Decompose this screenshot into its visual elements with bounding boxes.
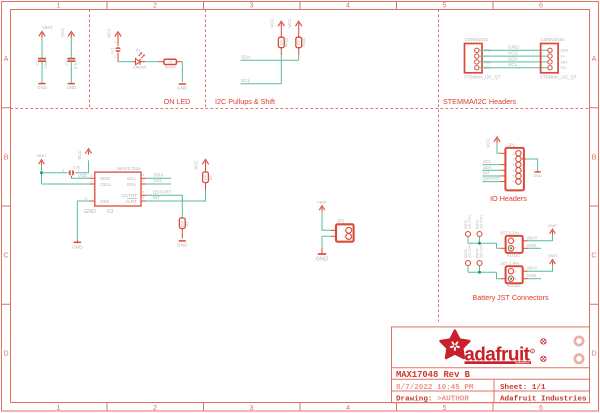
svg-text:SCL: SCL: [508, 62, 518, 68]
svg-text:VBAT: VBAT: [527, 235, 538, 240]
svg-text:INT: INT: [483, 170, 490, 175]
svg-text:JST 2 PH: JST 2 PH: [500, 230, 519, 235]
svg-text:R0402: R0402: [165, 66, 176, 70]
svg-text:GND: GND: [177, 86, 188, 91]
svg-text:4: 4: [143, 173, 145, 177]
svg-text:GND: GND: [316, 257, 329, 263]
svg-text:VDD: VDD: [78, 173, 87, 178]
svg-text:5: 5: [513, 174, 515, 178]
svg-text:VDD: VDD: [100, 176, 111, 181]
svg-text:5: 5: [143, 196, 145, 200]
svg-text:1: 1: [515, 247, 517, 251]
svg-text:STEMMA_I2C_QT: STEMMA_I2C_QT: [540, 74, 577, 79]
svg-text:I2C Pullups & Shift: I2C Pullups & Shift: [215, 97, 275, 106]
svg-text:SDA: SDA: [561, 60, 569, 64]
svg-text:B: B: [4, 153, 9, 162]
svg-text:R: R: [531, 349, 533, 353]
svg-text:VCC: VCC: [60, 28, 65, 37]
svg-text:GND: GND: [527, 243, 537, 248]
svg-text:R3: R3: [209, 175, 213, 180]
svg-text:3: 3: [250, 1, 254, 10]
svg-text:A: A: [592, 54, 597, 63]
svg-text:VCC: VCC: [77, 150, 82, 160]
svg-text:JP1: JP1: [508, 142, 516, 147]
svg-text:2: 2: [91, 180, 93, 184]
svg-text:8/7/2022 10:45 PM: 8/7/2022 10:45 PM: [396, 384, 474, 392]
svg-text:1: 1: [57, 403, 61, 412]
svg-text:4: 4: [513, 169, 515, 173]
svg-text:10uF: 10uF: [43, 59, 48, 69]
svg-text:4: 4: [346, 1, 350, 10]
svg-text:1: 1: [343, 229, 345, 233]
svg-text:GND: GND: [533, 173, 542, 178]
svg-text:GND: GND: [508, 45, 519, 51]
svg-text:JST 2 PH: JST 2 PH: [480, 244, 484, 258]
svg-text:10K: 10K: [297, 39, 301, 46]
svg-text:R0402: R0402: [302, 37, 306, 47]
svg-text:12: 12: [84, 196, 88, 200]
svg-text:1: 1: [143, 179, 145, 183]
svg-text:SJ1: SJ1: [111, 48, 115, 55]
svg-text:D1: D1: [136, 49, 141, 53]
svg-text:X3: X3: [107, 209, 114, 215]
svg-text:JST 2 PH: JST 2 PH: [500, 261, 519, 266]
svg-text:2: 2: [513, 157, 515, 161]
svg-text:1: 1: [78, 168, 80, 172]
svg-text:6: 6: [513, 180, 515, 184]
svg-text:B: B: [592, 153, 597, 162]
svg-text:QSTART: QSTART: [483, 176, 500, 181]
svg-text:3: 3: [62, 168, 64, 172]
svg-text:Sheet: 1/1: Sheet: 1/1: [500, 384, 546, 392]
svg-text:SCL: SCL: [561, 66, 568, 70]
svg-text:VBAT: VBAT: [36, 153, 47, 158]
svg-text:VCC: VCC: [486, 138, 491, 148]
svg-text:ALRT: ALRT: [125, 199, 137, 204]
svg-text:GND: GND: [84, 209, 96, 215]
svg-text:>AUTHOR: >AUTHOR: [437, 395, 469, 403]
svg-text:3: 3: [90, 174, 92, 178]
svg-text:5: 5: [443, 403, 447, 412]
svg-text:JST 2 PH: JST 2 PH: [468, 244, 472, 258]
svg-text:D: D: [591, 349, 596, 358]
svg-text:VBAT: VBAT: [317, 199, 328, 204]
svg-text:INT: INT: [153, 195, 161, 201]
svg-text:VCC: VCC: [287, 18, 292, 28]
svg-text:2: 2: [515, 269, 517, 273]
svg-text:GND: GND: [72, 244, 83, 250]
svg-text:STEMMA_I2C_QT: STEMMA_I2C_QT: [464, 74, 501, 79]
svg-text:C: C: [3, 251, 8, 260]
svg-text:SDA: SDA: [483, 165, 492, 170]
svg-text:VCC: VCC: [270, 18, 275, 28]
svg-text:VCC: VCC: [107, 28, 112, 38]
svg-text:GND: GND: [37, 85, 47, 90]
svg-text:V+: V+: [561, 55, 565, 59]
svg-text:10K: 10K: [204, 174, 208, 181]
svg-text:JST 2 PH: JST 2 PH: [468, 215, 472, 229]
svg-text:2: 2: [115, 41, 117, 45]
svg-text:1: 1: [115, 55, 117, 59]
svg-text:VCC: VCC: [194, 160, 199, 170]
svg-text:MAX17048 Rev B: MAX17048 Rev B: [396, 370, 471, 380]
svg-text:VBAT: VBAT: [548, 254, 558, 258]
svg-text:SDA: SDA: [508, 56, 519, 62]
svg-text:CONN4GS1: CONN4GS1: [465, 37, 490, 42]
svg-text:6: 6: [539, 1, 543, 10]
svg-text:STEMMA/I2C Headers: STEMMA/I2C Headers: [443, 97, 516, 106]
svg-text:VBAT: VBAT: [42, 25, 53, 30]
svg-text:Drawing:: Drawing:: [396, 395, 432, 403]
svg-text:R0402: R0402: [285, 37, 289, 47]
svg-text:SDA: SDA: [241, 55, 252, 61]
svg-text:A: A: [4, 54, 9, 63]
svg-text:VBAT: VBAT: [548, 224, 558, 228]
svg-text:QSTRT: QSTRT: [121, 193, 137, 198]
svg-text:Battery JST Connectors: Battery JST Connectors: [472, 293, 549, 302]
svg-text:GND: GND: [561, 49, 569, 53]
svg-text:JP2: JP2: [337, 218, 345, 223]
svg-text:1: 1: [513, 152, 515, 156]
svg-text:SCL: SCL: [483, 159, 492, 164]
svg-text:JST 2 PH: JST 2 PH: [480, 215, 484, 229]
svg-text:SCL: SCL: [127, 176, 137, 181]
svg-text:1: 1: [515, 277, 517, 281]
svg-text:D: D: [3, 349, 8, 358]
svg-text:GND: GND: [177, 243, 188, 249]
svg-text:2: 2: [153, 1, 157, 10]
svg-text:3: 3: [513, 163, 515, 167]
svg-text:CONN4GS1: CONN4GS1: [541, 37, 566, 42]
svg-text:VCC: VCC: [508, 51, 519, 57]
svg-text:ON LED: ON LED: [164, 97, 191, 106]
svg-text:C1: C1: [35, 60, 40, 66]
svg-text:SDA: SDA: [154, 172, 165, 178]
svg-text:industries: industries: [515, 361, 530, 365]
svg-text:R2: R2: [186, 221, 190, 226]
svg-text:X2G$1: X2G$1: [507, 283, 521, 288]
svg-text:1: 1: [57, 1, 61, 10]
svg-text:3: 3: [250, 403, 254, 412]
svg-text:C: C: [591, 251, 596, 260]
svg-text:QSTART: QSTART: [153, 190, 172, 196]
svg-text:100K: 100K: [180, 219, 184, 227]
svg-text:GREEN: GREEN: [133, 66, 147, 70]
svg-text:GND: GND: [67, 85, 77, 90]
svg-text:6: 6: [539, 403, 543, 412]
svg-text:4: 4: [346, 403, 350, 412]
svg-text:0.1uF: 0.1uF: [72, 58, 77, 69]
svg-text:X1G$1: X1G$1: [507, 253, 521, 258]
svg-text:IO Headers: IO Headers: [490, 194, 527, 203]
svg-text:2: 2: [153, 403, 157, 412]
svg-text:SCL: SCL: [241, 78, 251, 84]
svg-text:10K: 10K: [279, 39, 283, 46]
svg-text:SCL: SCL: [154, 178, 164, 184]
svg-text:6: 6: [143, 191, 145, 195]
svg-text:VBAT: VBAT: [527, 266, 538, 271]
svg-text:MAX1704x: MAX1704x: [117, 166, 141, 172]
svg-text:C2: C2: [64, 60, 69, 66]
svg-text:5: 5: [443, 1, 447, 10]
svg-text:2: 2: [515, 239, 517, 243]
svg-text:Adafruit Industries: Adafruit Industries: [500, 395, 587, 403]
svg-text:SDA: SDA: [126, 182, 137, 187]
svg-text:2: 2: [343, 235, 345, 239]
svg-text:CELL: CELL: [100, 182, 112, 187]
svg-text:GND: GND: [527, 273, 537, 278]
svg-text:VSS: VSS: [100, 199, 109, 204]
